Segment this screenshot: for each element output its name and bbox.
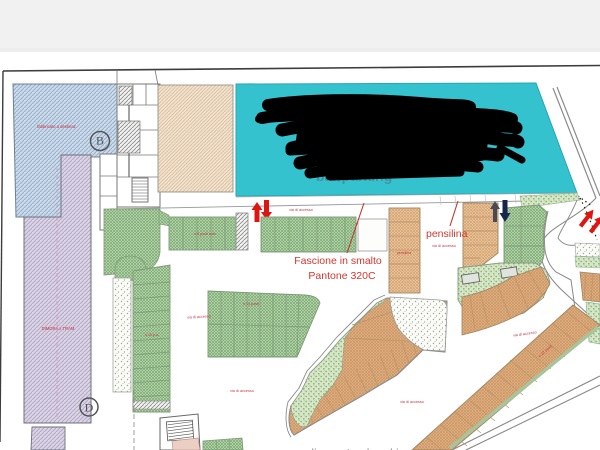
svg-text:ampliamento al parking: ampliamento al parking xyxy=(288,446,412,450)
svg-text:Pantone 320C: Pantone 320C xyxy=(308,270,376,282)
svg-text:via di accesso: via di accesso xyxy=(289,208,313,212)
svg-text:n.14 posti: n.14 posti xyxy=(243,302,259,306)
svg-text:Fascione in smalto: Fascione in smalto xyxy=(294,255,382,267)
svg-text:pensilina: pensilina xyxy=(426,228,468,240)
svg-text:pensilina: pensilina xyxy=(397,251,411,255)
svg-text:n.5 posti auto: n.5 posti auto xyxy=(194,232,216,236)
svg-text:D: D xyxy=(85,401,94,415)
svg-text:n.10 p.a.: n.10 p.a. xyxy=(145,333,159,337)
svg-text:fabbricato a destinaz.: fabbricato a destinaz. xyxy=(37,124,77,129)
svg-text:DIMORA x TRAM: DIMORA x TRAM xyxy=(42,326,75,331)
svg-text:via di accesso: via di accesso xyxy=(400,400,424,404)
svg-text:via di accesso: via di accesso xyxy=(432,244,456,248)
svg-text:B: B xyxy=(96,134,104,148)
svg-text:via di accesso: via di accesso xyxy=(230,389,254,393)
